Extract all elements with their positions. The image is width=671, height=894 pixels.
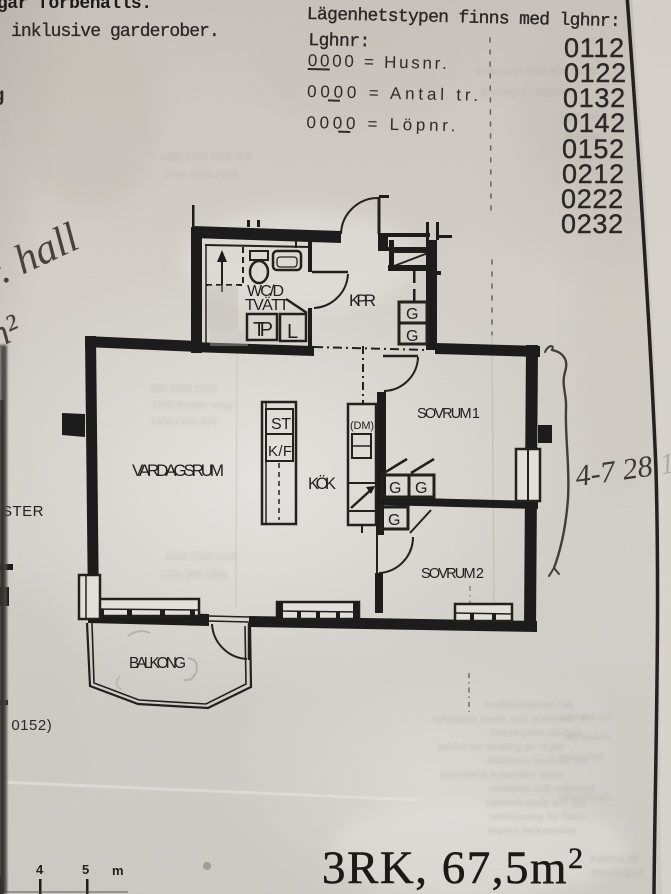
svg-text:(DM): (DM) <box>350 420 374 432</box>
svg-text:2400 1200 2100: 2400 1200 2100 <box>165 170 238 181</box>
svg-text:G: G <box>415 480 427 497</box>
svg-text:G: G <box>388 512 400 529</box>
svg-text:gar förbehålls.: gar förbehålls. <box>0 0 152 14</box>
svg-text:medlemmarnas rätt: medlemmarnas rätt <box>483 699 574 711</box>
svg-text:g: g <box>0 85 4 107</box>
svg-text:1200 fönster vägg: 1200 fönster vägg <box>152 400 232 411</box>
svg-text:KPR: KPR <box>349 291 376 310</box>
svg-text:VARDAGSRUM: VARDAGSRUM <box>132 461 224 480</box>
svg-text:STER: STER <box>2 503 44 520</box>
svg-text:TVÄTT: TVÄTT <box>245 296 289 314</box>
svg-text:K/F: K/F <box>268 443 292 460</box>
svg-text:300 1500 2700: 300 1500 2700 <box>150 384 217 395</box>
svg-text:1800 1500 2400: 1800 1500 2400 <box>165 552 238 563</box>
svg-text:L: L <box>287 321 298 343</box>
svg-text:kallelse till: kallelse till <box>590 853 638 865</box>
svg-text:stämman beslutar om: stämman beslutar om <box>487 755 588 767</box>
svg-text:5: 5 <box>82 862 89 877</box>
svg-text:1800 2700 1500 300: 1800 2700 1500 300 <box>160 152 252 163</box>
svg-text:ST: ST <box>271 416 291 433</box>
svg-text:. 0152): . 0152) <box>2 717 52 734</box>
svg-text:G: G <box>406 328 418 345</box>
svg-text:ingens verksamhet: ingens verksamhet <box>488 825 576 837</box>
svg-text:föreningen i enlighet: föreningen i enlighet <box>480 87 570 98</box>
svg-text:2700 300 1200: 2700 300 1200 <box>160 570 227 581</box>
svg-text:TP: TP <box>253 319 273 341</box>
svg-text:SOVRUM 2: SOVRUM 2 <box>421 566 484 582</box>
svg-text:KÖK: KÖK <box>308 475 336 493</box>
svg-text:0232: 0232 <box>561 209 624 239</box>
svg-text:inklusive garderober.: inklusive garderober. <box>11 22 219 42</box>
svg-text:2400 2100 600: 2400 2100 600 <box>150 417 217 428</box>
svg-text:styrelsens ledamöter samt: styrelsens ledamöter samt <box>440 769 563 781</box>
svg-text:hyresgäst insats och andelstal: hyresgäst insats och andelstal i fö <box>432 713 590 725</box>
svg-text:G: G <box>389 480 401 497</box>
svg-text:redovisning för fören: redovisning för fören <box>490 811 586 823</box>
svg-text:m: m <box>112 863 124 878</box>
svg-text:revisorer och valbered: revisorer och valbered <box>490 783 594 795</box>
svg-text:Lghnr:: Lghnr: <box>308 31 370 52</box>
svg-text:föreningens stadgar: föreningens stadgar <box>490 727 583 739</box>
svg-text:3RK, 67,5m2: 3RK, 67,5m2 <box>322 842 585 894</box>
svg-text:0000 = Löpnr.: 0000 = Löpnr. <box>306 113 455 135</box>
svg-text:beslut om ändring av regler: beslut om ändring av regler <box>438 741 566 753</box>
svg-text:G: G <box>406 306 418 323</box>
svg-text:4: 4 <box>36 862 44 877</box>
svg-text:BALKONG: BALKONG <box>129 655 186 672</box>
svg-text:räkenskapsår och års: räkenskapsår och års <box>486 797 586 809</box>
svg-text:föreningsst: föreningsst <box>592 867 643 879</box>
svg-text:SOVRUM 1: SOVRUM 1 <box>417 406 480 422</box>
